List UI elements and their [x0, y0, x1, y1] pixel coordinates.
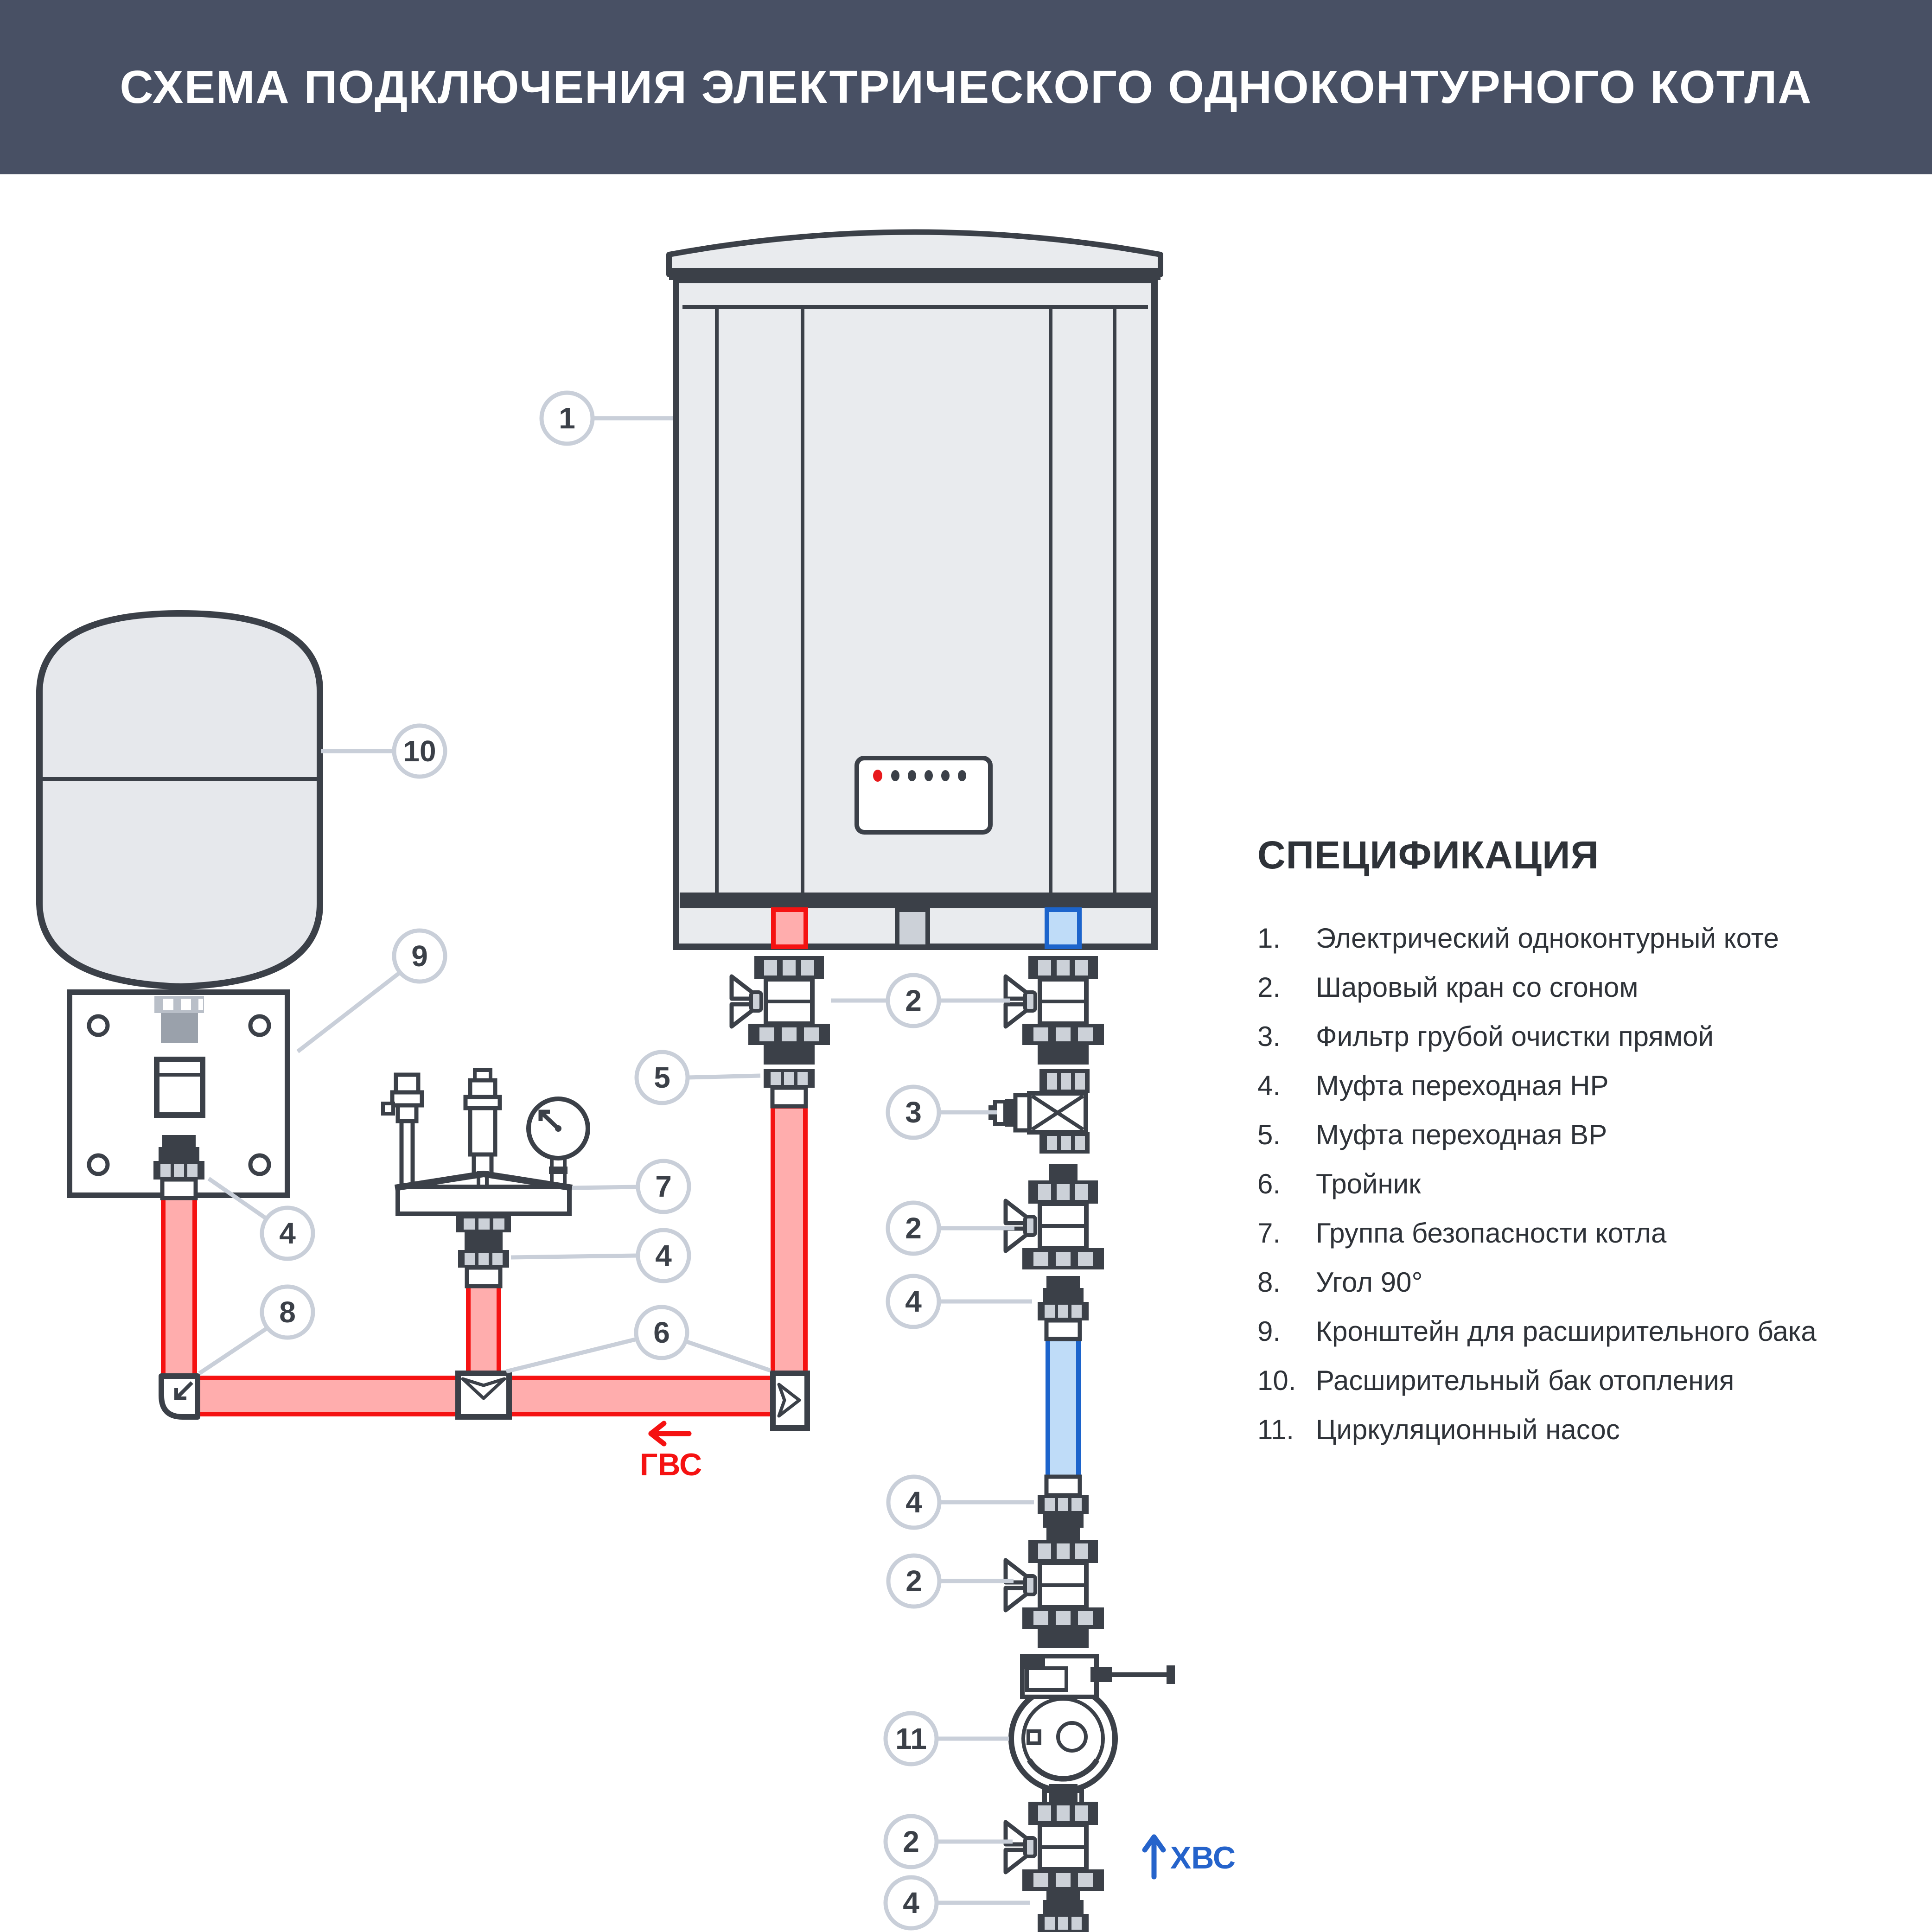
spec-item-number: 1. — [1257, 922, 1316, 954]
spec-item-number: 11. — [1257, 1414, 1316, 1446]
svg-text:2: 2 — [905, 1564, 922, 1598]
hvs-label: ХВС — [1170, 1840, 1236, 1875]
svg-text:4: 4 — [279, 1217, 296, 1250]
spec-item: 1.Электрический одноконтурный коте — [1257, 922, 1932, 971]
svg-text:6: 6 — [653, 1316, 670, 1349]
callout-valve-c: 2 — [888, 1556, 939, 1607]
coupling-c — [1038, 1888, 1089, 1932]
callout-boiler: 1 — [542, 393, 593, 444]
spec-item: 8.Угол 90° — [1257, 1266, 1932, 1315]
spec-list: 1.Электрический одноконтурный коте2.Шаро… — [1257, 922, 1932, 1463]
coupling-b — [1038, 1477, 1089, 1540]
boiler-hot-outlet — [773, 910, 806, 947]
callout-coupling-vr: 5 — [637, 1052, 688, 1103]
header-bar: СХЕМА ПОДКЛЮЧЕНИЯ ЭЛЕКТРИЧЕСКОГО ОДНОКОН… — [0, 0, 1932, 174]
svg-text:4: 4 — [905, 1486, 922, 1519]
cold-pipe — [1048, 1339, 1078, 1477]
spec-item-number: 6. — [1257, 1168, 1316, 1200]
hot-pipe-left-vertical — [163, 1195, 195, 1380]
cold-ball-valve-d — [1006, 1802, 1104, 1891]
svg-text:1: 1 — [559, 402, 575, 435]
spec-item: 3.Фильтр грубой очистки прямой — [1257, 1020, 1932, 1070]
svg-text:2: 2 — [905, 984, 922, 1017]
cold-valve-b-cap — [1049, 1164, 1078, 1181]
hot-ball-valve — [732, 956, 830, 1045]
relief-valve-icon — [383, 1075, 422, 1189]
spec-item: 9.Кронштейн для расширительного бака — [1257, 1315, 1932, 1365]
callout-filter: 3 — [888, 1087, 939, 1138]
svg-text:4: 4 — [655, 1239, 672, 1272]
callout-elbow90: 8 — [262, 1287, 313, 1338]
spec-item: 2.Шаровый кран со сгоном — [1257, 971, 1932, 1020]
spec-item-text: Шаровый кран со сгоном — [1316, 971, 1932, 1003]
hvs-arrow-icon — [1145, 1837, 1163, 1877]
svg-text:2: 2 — [903, 1825, 919, 1858]
hot-elbow-right-icon — [773, 1373, 807, 1428]
expansion-tank — [39, 613, 320, 987]
cold-ball-valve-top — [1006, 956, 1104, 1045]
cold-valve-top-tail — [1038, 1045, 1089, 1065]
svg-text:9: 9 — [411, 939, 428, 973]
spec-item-number: 9. — [1257, 1315, 1316, 1347]
svg-text:4: 4 — [905, 1285, 922, 1318]
gvs-arrow-icon — [651, 1423, 689, 1444]
cold-valve-c-tail — [1038, 1629, 1089, 1648]
svg-text:10: 10 — [403, 734, 436, 768]
spec-item: 7.Группа безопасности котла — [1257, 1217, 1932, 1266]
spec-item: 11. Циркуляционный насос — [1257, 1414, 1932, 1463]
callout-coupling-a: 4 — [888, 1276, 939, 1327]
safety-manifold — [395, 1174, 572, 1286]
spec-item-text: Тройник — [1316, 1168, 1932, 1200]
spec-item-number: 2. — [1257, 971, 1316, 1003]
hot-pipe-safety-vertical — [468, 1285, 499, 1382]
filter — [988, 1069, 1090, 1154]
boiler-cold-inlet — [1047, 910, 1079, 947]
display-led-red — [873, 770, 882, 782]
cold-valve-d-cap — [1049, 1784, 1078, 1802]
tee-icon — [458, 1373, 509, 1417]
callout-coupling-bracket: 4 — [262, 1208, 313, 1259]
gvs-label: ГВС — [640, 1447, 702, 1482]
callout-safety-group: 7 — [638, 1161, 689, 1212]
svg-text:4: 4 — [903, 1886, 919, 1919]
callout-tee: 6 — [636, 1307, 687, 1358]
spec-item: 5.Муфта переходная ВР — [1257, 1119, 1932, 1168]
boiler-service-outlet — [897, 910, 928, 947]
callout-pump: 11 — [886, 1713, 937, 1764]
callout-coupling-c: 4 — [886, 1877, 937, 1928]
spec-item-text: Фильтр грубой очистки прямой — [1316, 1020, 1932, 1052]
pressure-gauge-icon — [529, 1099, 588, 1188]
callout-tank: 10 — [394, 726, 445, 777]
elbow-90-icon — [161, 1376, 198, 1417]
spec-heading: СПЕЦИФИКАЦИЯ — [1257, 833, 1932, 878]
spec-item-number: 7. — [1257, 1217, 1316, 1249]
gvs-flow: ГВС — [640, 1423, 702, 1482]
callout-bracket: 9 — [394, 931, 445, 982]
svg-text:3: 3 — [905, 1096, 922, 1129]
svg-text:11: 11 — [895, 1722, 927, 1755]
spec-item: 4.Муфта переходная НР — [1257, 1070, 1932, 1119]
spec-item-text: Муфта переходная НР — [1316, 1070, 1932, 1102]
spec-item-text: Кронштейн для расширительного бака — [1316, 1315, 1932, 1347]
callout-valve-top: 2 — [888, 975, 939, 1026]
svg-text:8: 8 — [279, 1295, 296, 1329]
callout-coupling-safety: 4 — [638, 1230, 689, 1281]
boiler-display — [857, 758, 990, 832]
svg-text:7: 7 — [655, 1170, 672, 1203]
svg-text:5: 5 — [654, 1061, 670, 1094]
spec-item-number: 8. — [1257, 1266, 1316, 1298]
coupling-a — [1038, 1276, 1089, 1339]
spec-item-number: 3. — [1257, 1020, 1316, 1052]
callout-coupling-b: 4 — [888, 1477, 939, 1528]
spec-item-text: Электрический одноконтурный коте — [1316, 922, 1932, 954]
spec-item: 10.Расширительный бак отопления — [1257, 1365, 1932, 1414]
spec-item-text: Расширительный бак отопления — [1316, 1365, 1932, 1396]
infographic-canvas: 1 10 9 4 8 5 7 4 — [0, 0, 1932, 1932]
hot-pipe-boiler-vertical — [773, 1106, 805, 1377]
spec-item-number: 4. — [1257, 1070, 1316, 1102]
cold-ball-valve-c — [1006, 1540, 1104, 1629]
spec-item: 6.Тройник — [1257, 1168, 1932, 1217]
callout-valve-b: 2 — [888, 1203, 939, 1254]
spec-item-text: Циркуляционный насос — [1316, 1414, 1932, 1446]
hot-valve-tail — [764, 1045, 815, 1065]
spec-item-text: Группа безопасности котла — [1316, 1217, 1932, 1249]
spec-item-number: 5. — [1257, 1119, 1316, 1151]
coupling-vr — [764, 1069, 815, 1106]
spec-item-text: Угол 90° — [1316, 1266, 1932, 1298]
spec-item-text: Муфта переходная ВР — [1316, 1119, 1932, 1151]
safety-group — [383, 1070, 588, 1286]
cold-ball-valve-b — [1006, 1180, 1104, 1269]
pump-terminal-box — [1022, 1656, 1175, 1697]
spec-panel: СПЕЦИФИКАЦИЯ 1.Электрический одноконтурн… — [1257, 833, 1932, 1463]
spec-item-number: 10. — [1257, 1365, 1316, 1396]
hvs-flow: ХВС — [1145, 1837, 1236, 1877]
circulation-pump — [1011, 1656, 1175, 1811]
page-title: СХЕМА ПОДКЛЮЧЕНИЯ ЭЛЕКТРИЧЕСКОГО ОДНОКОН… — [120, 61, 1812, 114]
callout-valve-d: 2 — [886, 1816, 937, 1867]
svg-text:2: 2 — [905, 1211, 922, 1245]
boiler — [669, 232, 1160, 947]
